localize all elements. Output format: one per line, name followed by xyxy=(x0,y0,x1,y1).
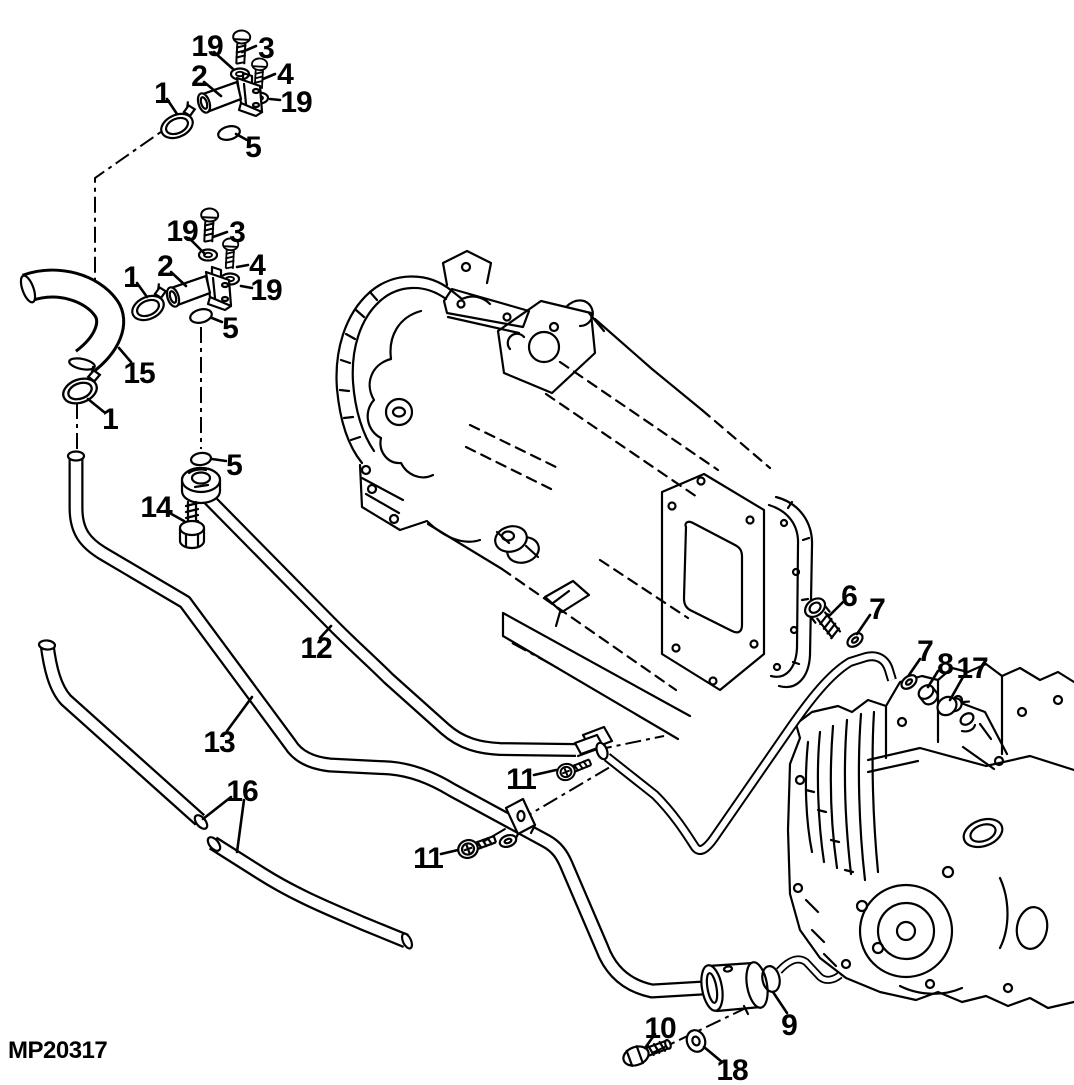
callout-2: 2 xyxy=(191,60,207,93)
leader-line xyxy=(857,615,870,634)
callout-5: 5 xyxy=(226,449,242,482)
bolt-14 xyxy=(180,502,204,548)
washer-18 xyxy=(684,1028,708,1055)
callout-16: 16 xyxy=(226,775,258,808)
leader-line xyxy=(213,232,227,237)
o-ring-5c xyxy=(190,452,211,467)
callout-1: 1 xyxy=(154,77,170,110)
leader-line xyxy=(212,318,222,322)
callout-9: 9 xyxy=(781,1009,797,1042)
callout-3: 3 xyxy=(229,216,245,249)
callout-7: 7 xyxy=(917,635,933,668)
clamp-1c xyxy=(57,365,106,408)
bolt-3a xyxy=(232,30,251,64)
hose-16-front xyxy=(39,640,210,831)
bolt-11b xyxy=(456,831,498,861)
centerlines xyxy=(77,120,746,1053)
callout-18: 18 xyxy=(716,1054,748,1085)
callout-10: 10 xyxy=(644,1012,676,1045)
callout-5: 5 xyxy=(222,312,238,345)
tube-union xyxy=(575,727,612,761)
banjo-fitting xyxy=(182,468,220,503)
leader-line xyxy=(270,99,280,100)
leader-line xyxy=(263,74,275,79)
callout-17: 17 xyxy=(956,652,988,685)
hose-13 xyxy=(68,452,703,992)
callout-13: 13 xyxy=(203,726,235,759)
canister xyxy=(698,961,771,1014)
leader-line xyxy=(441,850,458,854)
callout-12: 12 xyxy=(300,632,332,665)
callout-19: 19 xyxy=(250,274,282,307)
callout-3: 3 xyxy=(258,32,274,65)
callout-19: 19 xyxy=(191,30,223,63)
elbow-fitting-2b xyxy=(165,267,231,310)
callout-1: 1 xyxy=(123,261,139,294)
bolt-11a xyxy=(555,755,593,783)
leader-line xyxy=(237,265,248,267)
engine-ribs xyxy=(806,712,878,966)
leader-line xyxy=(171,272,186,286)
callout-6: 6 xyxy=(841,580,857,613)
parts-diagram-canvas: 19 3 2 4 19 1 5 19 3 2 4 19 1 5 15 1 5 1… xyxy=(0,0,1074,1085)
o-ring-5b xyxy=(189,307,213,325)
leader-line xyxy=(212,459,226,461)
engine-block xyxy=(788,664,1074,1008)
transmission-case xyxy=(337,251,813,690)
callout-14: 14 xyxy=(140,491,173,524)
leader-line xyxy=(534,770,556,775)
engine-return-pipe xyxy=(779,959,840,979)
callout-15: 15 xyxy=(123,357,155,390)
callout-19: 19 xyxy=(280,86,312,119)
callout-7: 7 xyxy=(869,593,885,626)
callout-8: 8 xyxy=(937,648,953,681)
o-ring-5a xyxy=(217,124,241,142)
callout-19: 19 xyxy=(166,215,198,248)
callout-11: 11 xyxy=(413,842,443,875)
callout-2: 2 xyxy=(157,250,173,283)
washer-7a xyxy=(845,630,865,649)
callout-11: 11 xyxy=(506,763,536,796)
callout-1: 1 xyxy=(102,403,118,436)
hose-15 xyxy=(18,274,110,372)
connector-6 xyxy=(801,595,844,642)
oil-line-tube xyxy=(607,656,892,850)
figure-part-code: MP20317 xyxy=(8,1037,107,1064)
callout-5: 5 xyxy=(245,131,261,164)
